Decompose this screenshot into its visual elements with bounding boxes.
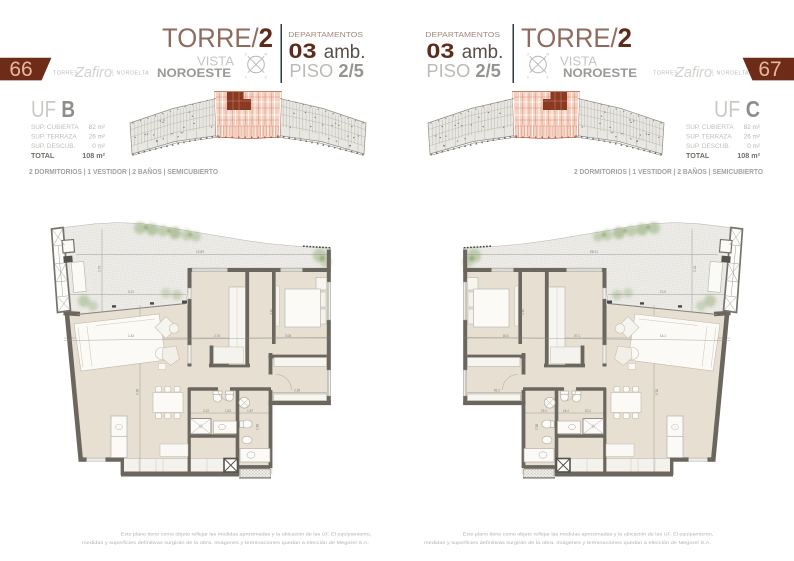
svg-text:PISO 2/5: PISO 2/5 (426, 60, 501, 81)
svg-text:NORDELTA: NORDELTA (117, 71, 150, 77)
svg-text:2.22: 2.22 (203, 409, 209, 413)
svg-text:TOTAL: TOTAL (31, 151, 55, 160)
svg-text:SUP. DESCUB.: SUP. DESCUB. (686, 143, 730, 150)
svg-text:3.05: 3.05 (285, 334, 291, 338)
svg-text:SUP. DESCUB.: SUP. DESCUB. (31, 143, 75, 150)
svg-text:03: 03 (289, 39, 317, 63)
svg-text:SUP. CUBIERTA: SUP. CUBIERTA (31, 124, 79, 131)
svg-text:82 m²: 82 m² (89, 124, 105, 131)
svg-text:PISO 2/5: PISO 2/5 (289, 60, 364, 81)
svg-text:N: N (264, 52, 267, 56)
svg-text:03: 03 (426, 39, 454, 63)
svg-text:DEPARTAMENTOS: DEPARTAMENTOS (288, 30, 363, 39)
svg-text:5.21: 5.21 (128, 290, 134, 294)
svg-text:108 m²: 108 m² (82, 151, 105, 160)
svg-text:TORRE/2: TORRE/2 (162, 23, 273, 53)
svg-text:medidas y superficies definiti: medidas y superficies definitivas surgir… (424, 540, 711, 546)
svg-text:82 m²: 82 m² (744, 124, 760, 131)
svg-text:DEPARTAMENTOS: DEPARTAMENTOS (425, 30, 500, 39)
svg-text:SUP. TERRAZA: SUP. TERRAZA (686, 134, 732, 141)
svg-text:UF B: UF B (31, 96, 75, 122)
svg-text:NOROESTE: NOROESTE (157, 68, 231, 80)
svg-text:1.61: 1.61 (225, 409, 231, 413)
svg-text:|: | (712, 70, 714, 77)
svg-text:VISTA: VISTA (560, 54, 597, 69)
svg-text:SUP. TERRAZA: SUP. TERRAZA (31, 134, 77, 141)
svg-text:26 m²: 26 m² (744, 134, 760, 141)
svg-text:2 DORMITORIOS | 1 VESTIDOR | 2: 2 DORMITORIOS | 1 VESTIDOR | 2 BAÑOS | S… (574, 167, 763, 176)
svg-text:67: 67 (758, 58, 781, 81)
svg-text:1.87: 1.87 (247, 409, 253, 413)
svg-text:O: O (244, 52, 247, 56)
svg-text:NORDELTA: NORDELTA (717, 71, 750, 77)
svg-text:66: 66 (9, 58, 32, 81)
svg-text:Zafiro: Zafiro (74, 65, 112, 81)
svg-text:2.76: 2.76 (214, 334, 220, 338)
svg-text:2.39: 2.39 (294, 389, 300, 393)
svg-text:2 DORMITORIOS | 1 VESTIDOR | 2: 2 DORMITORIOS | 1 VESTIDOR | 2 BAÑOS | S… (29, 167, 218, 176)
svg-text:N: N (546, 52, 549, 56)
svg-text:SUP. CUBIERTA: SUP. CUBIERTA (686, 124, 734, 131)
svg-text:26 m²: 26 m² (89, 134, 105, 141)
svg-text:Zafiro: Zafiro (674, 65, 712, 81)
svg-text:TORRE/2: TORRE/2 (521, 23, 632, 53)
svg-text:9.36: 9.36 (136, 389, 140, 395)
svg-text:0 m²: 0 m² (747, 143, 760, 150)
svg-text:|: | (112, 70, 114, 77)
svg-text:Este plano tiene como objeto r: Este plano tiene como objeto reflejar la… (463, 532, 714, 538)
svg-text:medidas y superficies definiti: medidas y superficies definitivas surgir… (82, 540, 369, 546)
svg-text:Este plano tiene como objeto r: Este plano tiene como objeto reflejar la… (121, 532, 372, 538)
svg-text:O: O (526, 52, 529, 56)
svg-text:NOROESTE: NOROESTE (563, 68, 637, 80)
svg-text:1.42: 1.42 (128, 334, 134, 338)
svg-text:VISTA: VISTA (197, 54, 234, 69)
svg-text:1.68: 1.68 (256, 424, 260, 430)
svg-text:2.76: 2.76 (98, 266, 102, 272)
svg-text:3.40: 3.40 (270, 309, 274, 315)
svg-text:UF C: UF C (714, 96, 760, 122)
svg-text:TOTAL: TOTAL (686, 151, 710, 160)
svg-text:12.89: 12.89 (196, 250, 204, 254)
svg-text:108 m²: 108 m² (737, 151, 760, 160)
svg-text:0 m²: 0 m² (92, 143, 105, 150)
